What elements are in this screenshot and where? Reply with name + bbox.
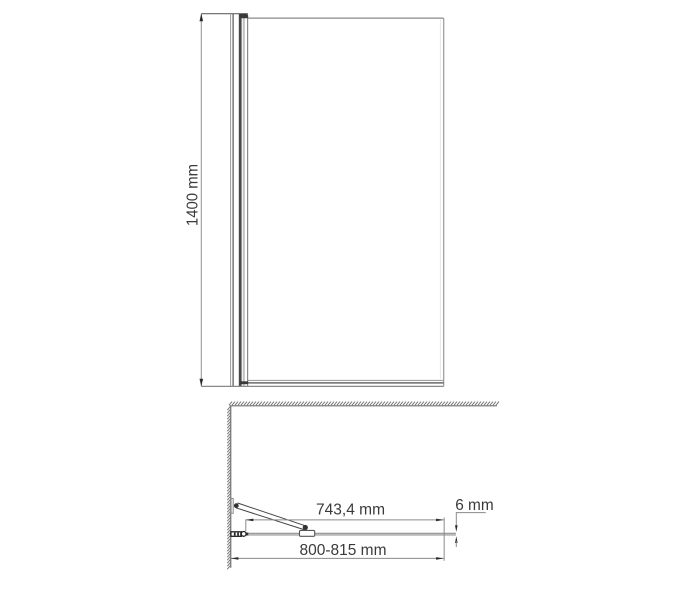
svg-text:1400 mm: 1400 mm xyxy=(185,164,202,226)
svg-text:6 mm: 6 mm xyxy=(455,497,494,514)
svg-text:800-815 mm: 800-815 mm xyxy=(300,542,387,559)
svg-text:743,4 mm: 743,4 mm xyxy=(316,502,385,519)
